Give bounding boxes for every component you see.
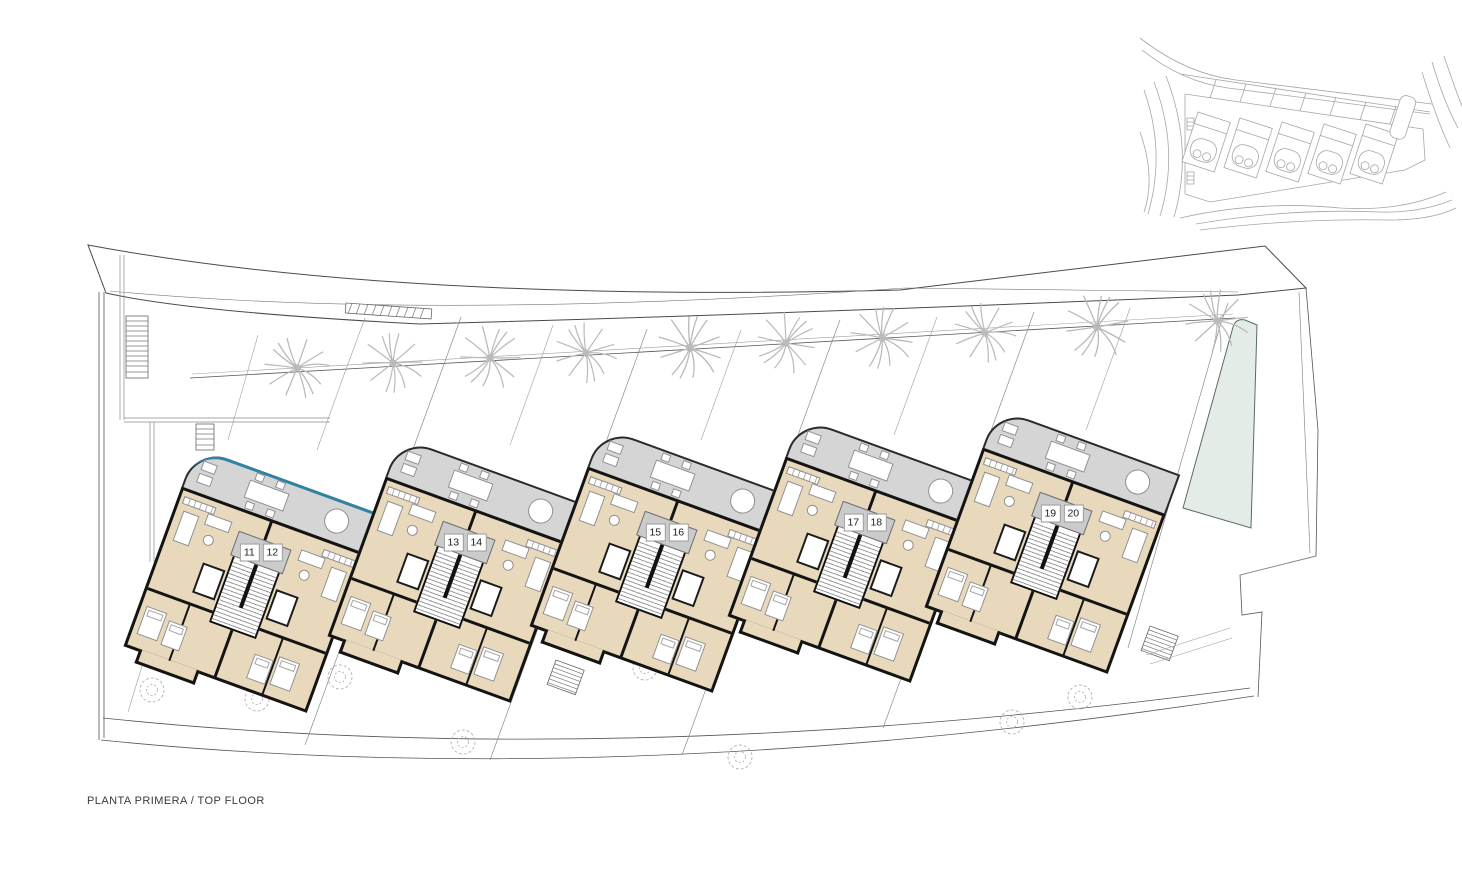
lounge-chair (196, 473, 214, 488)
lounge-chair (404, 451, 422, 466)
unit-number: 14 (466, 534, 486, 552)
lounge-chair (200, 461, 218, 476)
garden-tree-icon (451, 730, 475, 754)
palm-tree-icon (949, 299, 1020, 367)
garden-tree-icon (1000, 710, 1024, 734)
unit-number: 15 (645, 524, 665, 542)
lounge-chair (1001, 422, 1019, 437)
key-map (1140, 38, 1462, 230)
lounge-chair (606, 441, 624, 456)
round-table (321, 505, 353, 537)
garden-tree-icon (328, 665, 352, 689)
round-table (727, 485, 759, 517)
lounge-chair (804, 431, 822, 446)
palm-tree-icon (265, 338, 330, 398)
garden-tree-icon (728, 745, 752, 769)
round-table (925, 475, 957, 507)
unit-number: 17 (843, 514, 863, 532)
lounge-chair (997, 434, 1015, 449)
palm-tree-icon (451, 317, 530, 399)
floor-plan-sheet: 11 12 (0, 0, 1462, 885)
unit-number: 16 (668, 524, 688, 542)
lounge-chair (800, 443, 818, 458)
garden-tree-icon (1068, 685, 1092, 709)
unit-number: 18 (866, 514, 886, 532)
round-table (1122, 466, 1154, 498)
round-table (525, 495, 557, 527)
road (88, 245, 1306, 324)
palm-tree-icon (352, 322, 435, 403)
unit-number: 19 (1040, 505, 1060, 523)
unit-number: 13 (443, 534, 463, 552)
lounge-chair (602, 453, 620, 468)
plan-caption: PLANTA PRIMERA / TOP FLOOR (87, 795, 265, 807)
pool (1183, 320, 1257, 528)
unit-number: 20 (1063, 505, 1083, 523)
garden-tree-icon (140, 678, 164, 702)
unit-number: 11 (239, 544, 259, 562)
palm-tree-icon (752, 307, 820, 378)
unit-number: 12 (262, 544, 282, 562)
site-plan-drawing (0, 0, 1462, 885)
lounge-chair (400, 463, 418, 478)
